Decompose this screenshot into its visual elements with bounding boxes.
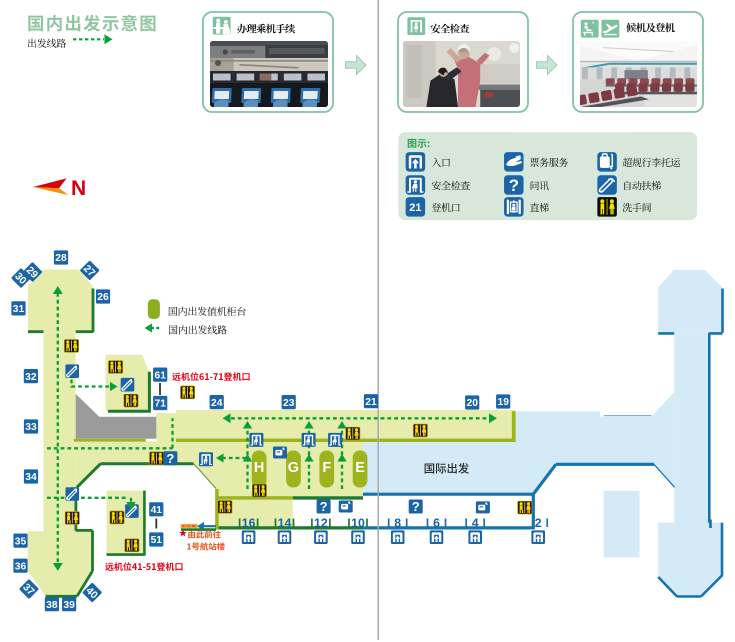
svg-text:28: 28: [55, 253, 67, 264]
svg-text:20: 20: [466, 398, 478, 409]
svg-text:24: 24: [211, 398, 223, 409]
svg-text:38: 38: [46, 600, 58, 611]
svg-text:71: 71: [154, 399, 166, 410]
svg-text:16: 16: [242, 516, 256, 530]
svg-text:H: H: [254, 460, 264, 476]
svg-text:61: 61: [154, 370, 166, 381]
svg-text:31: 31: [13, 304, 25, 315]
svg-text:26: 26: [97, 292, 109, 303]
svg-text:36: 36: [15, 561, 27, 572]
svg-text:14: 14: [278, 516, 292, 530]
svg-text:10: 10: [351, 516, 365, 530]
svg-text:8: 8: [394, 516, 401, 530]
svg-text:32: 32: [25, 372, 37, 383]
svg-text:G: G: [288, 460, 299, 476]
svg-text:21: 21: [365, 397, 377, 408]
svg-text:35: 35: [15, 536, 27, 547]
svg-text:41: 41: [151, 505, 163, 516]
svg-text:N: N: [71, 177, 86, 200]
svg-text:12: 12: [314, 516, 328, 530]
svg-text:51: 51: [151, 535, 163, 546]
svg-text:4: 4: [472, 516, 479, 530]
svg-text:6: 6: [433, 516, 440, 530]
svg-text:23: 23: [283, 398, 295, 409]
svg-text:39: 39: [63, 600, 75, 611]
svg-text:E: E: [355, 460, 365, 476]
svg-text:19: 19: [497, 397, 509, 408]
svg-text:33: 33: [25, 422, 37, 433]
svg-text:34: 34: [25, 472, 37, 483]
svg-text:2: 2: [535, 516, 542, 530]
svg-text:F: F: [322, 460, 331, 476]
